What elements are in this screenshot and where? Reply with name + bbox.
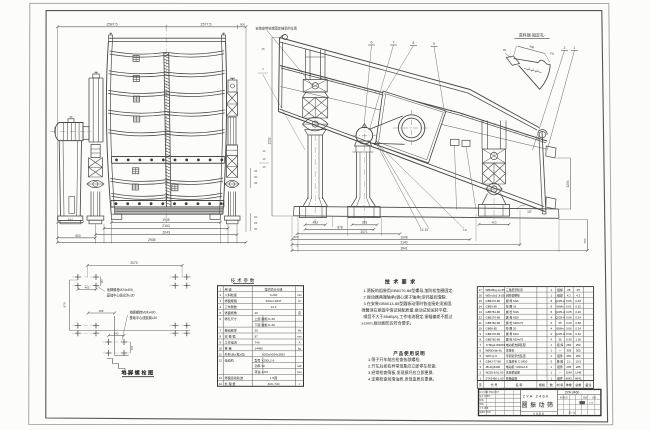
svg-text:代 号: 代 号 — [491, 382, 498, 387]
svg-text:进料端-固定孔-: 进料端-固定孔- — [519, 32, 546, 38]
svg-text:湿式筛分分级: 湿式筛分分级 — [264, 286, 282, 291]
svg-text:820: 820 — [293, 235, 298, 239]
svg-text:0.20: 0.20 — [566, 321, 572, 325]
svg-text:产品使用说明: 产品使用说明 — [393, 350, 425, 357]
svg-text:W80Dzbb-5y: W80Dzbb-5y — [486, 349, 503, 353]
svg-text:Hz: Hz — [298, 329, 302, 333]
svg-text:±1mm,振动图形应符合要求。: ±1mm,振动图形应符合要求。 — [362, 319, 414, 325]
svg-text:圆振动筛: 圆振动筛 — [521, 401, 555, 409]
svg-text:JY80g2-W4615: JY80g2-W4615 — [486, 343, 506, 347]
svg-text:11: 11 — [219, 352, 222, 356]
svg-text:工作电流: 工作电流 — [225, 340, 237, 345]
svg-text:2YA2460-1.00: 2YA2460-1.00 — [486, 376, 504, 380]
svg-text:基础中心线允许≤30: 基础中心线允许≤30 — [107, 293, 135, 298]
svg-text:8: 8 — [413, 41, 415, 45]
svg-text:下层 振幅 8~50: 下层 振幅 8~50 — [255, 322, 276, 327]
svg-text:35: 35 — [558, 321, 562, 325]
svg-text:500: 500 — [240, 22, 245, 26]
svg-text:三角皮带 C-2450: 三角皮带 C-2450 — [506, 360, 528, 364]
svg-text:305: 305 — [566, 349, 571, 353]
svg-text:—: — — [559, 349, 562, 353]
svg-text:1008: 1008 — [400, 235, 407, 239]
svg-text:150: 150 — [130, 345, 134, 350]
svg-text:12: 12 — [479, 315, 483, 319]
svg-text:250: 250 — [566, 354, 571, 358]
svg-text:2.开车后如有异常现象应立即停车检查;: 2.开车后如有异常现象应立即停车检查; — [368, 363, 436, 369]
svg-text:m²: m² — [298, 299, 301, 303]
svg-text:螺 栓 M16: 螺 栓 M16 — [506, 310, 519, 314]
svg-text:筛面倾角: 筛面倾角 — [225, 310, 237, 315]
svg-text:4.2: 4.2 — [567, 293, 571, 297]
svg-text:400~740: 400~740 — [268, 382, 280, 386]
svg-text:97: 97 — [255, 335, 259, 339]
svg-text:305: 305 — [576, 349, 581, 353]
svg-text:11: 11 — [479, 321, 482, 325]
svg-text:15: 15 — [262, 165, 266, 169]
svg-text:1.20: 1.20 — [575, 338, 581, 342]
svg-text:基础中心线距离≤30: 基础中心线距离≤30 — [130, 315, 158, 320]
svg-text:mm: mm — [297, 335, 302, 339]
svg-text:14480: 14480 — [255, 347, 264, 351]
svg-text:10.5: 10.5 — [575, 360, 581, 364]
svg-text:GB6170-86: GB6170-86 — [486, 299, 501, 303]
svg-text:13: 13 — [219, 376, 223, 380]
svg-text:组件: 组件 — [557, 354, 563, 358]
svg-text:GB93-85: GB93-85 — [486, 304, 498, 308]
svg-text:250: 250 — [566, 343, 571, 347]
svg-text:组件: 组件 — [557, 365, 563, 369]
svg-text:技术参数: 技术参数 — [231, 277, 257, 284]
svg-text:rpm: rpm — [297, 370, 302, 374]
svg-text:WBA6Fg-Jy-55: WBA6Fg-Jy-55 — [486, 288, 506, 292]
svg-text:双 振 幅: 双 振 幅 — [225, 334, 236, 339]
svg-text:筛孔尺寸: 筛孔尺寸 — [225, 316, 237, 321]
svg-text:1232: 1232 — [268, 137, 272, 144]
svg-text:数: 数 — [550, 382, 553, 387]
svg-text:Q235-A: Q235-A — [555, 332, 565, 336]
svg-text:878: 878 — [337, 225, 343, 229]
svg-text:3.经常检查筛板,发现损坏应立即更换;: 3.经常检查筛板,发现损坏应立即更换; — [368, 369, 434, 375]
svg-text:电动机: 电动机 — [225, 357, 235, 362]
svg-text:2938: 2938 — [148, 238, 156, 242]
svg-text:垫 圈 20: 垫 圈 20 — [506, 327, 517, 331]
svg-text:17: 17 — [479, 288, 483, 292]
svg-text:WDmJa1-Jt-55: WDmJa1-Jt-55 — [486, 293, 505, 297]
svg-text:1148: 1148 — [566, 371, 573, 375]
svg-text:0.01: 0.01 — [566, 304, 572, 308]
svg-text:15: 15 — [479, 299, 483, 303]
svg-text:1148: 1148 — [575, 371, 582, 375]
svg-text:0.05: 0.05 — [566, 299, 572, 303]
svg-text:kW: kW — [297, 364, 301, 368]
svg-text:型号 Y200L2-6: 型号 Y200L2-6 — [255, 357, 275, 362]
svg-text:12: 12 — [262, 149, 266, 153]
svg-text:1.筛板的组装用GB6170-86型螺母,加防松垫圈固定;: 1.筛板的组装用GB6170-86型螺母,加防松垫圈固定; — [364, 287, 454, 293]
svg-text:三角皮带轮罩: 三角皮带轮罩 — [506, 288, 523, 292]
svg-text:0.10: 0.10 — [575, 304, 581, 308]
svg-text:备注: 备注 — [585, 382, 591, 387]
svg-text:电动机支撑装配: 电动机支撑装配 — [506, 343, 526, 347]
svg-text:序: 序 — [479, 382, 482, 387]
svg-text:600x4.2847: 600x4.2847 — [266, 299, 282, 303]
svg-text:2: 2 — [564, 46, 566, 50]
svg-text:技 术 要 求: 技 术 要 求 — [385, 279, 416, 286]
svg-text:383: 383 — [362, 221, 368, 225]
svg-text:GB6170-86: GB6170-86 — [486, 315, 501, 319]
svg-text:螺 栓 M24x75: 螺 栓 M24x75 — [506, 338, 524, 342]
svg-text:度: 度 — [298, 311, 301, 315]
svg-text:150: 150 — [100, 279, 104, 284]
svg-text:GB5781-86: GB5781-86 — [486, 310, 501, 314]
svg-text:2071: 2071 — [360, 230, 367, 234]
svg-text:螺 母 M24: 螺 母 M24 — [506, 332, 519, 336]
svg-text:组件: 组件 — [557, 376, 563, 380]
svg-text:地脚螺栓M24x400: 地脚螺栓M24x400 — [107, 287, 133, 292]
svg-text:支座梁装配: 支座梁装配 — [506, 371, 520, 375]
svg-text:12: 12 — [219, 358, 223, 362]
svg-text:工作层数: 工作层数 — [225, 304, 237, 309]
svg-text:0.80: 0.80 — [575, 321, 581, 325]
svg-text:25: 25 — [577, 288, 581, 292]
svg-text:螺 母 M20: 螺 母 M20 — [506, 315, 519, 319]
svg-text:20: 20 — [254, 215, 258, 219]
svg-text:用 途: 用 途 — [225, 286, 232, 291]
svg-text:橡 胶: 橡 胶 — [557, 360, 564, 364]
svg-text:344: 344 — [68, 218, 74, 222]
svg-text:间隙调整垫: 间隙调整垫 — [506, 293, 520, 297]
svg-text:重 量: 重 量 — [225, 346, 232, 351]
svg-text:2YA 2460: 2YA 2460 — [523, 393, 550, 398]
svg-text:噪音不大于85dB(A),工作电流稳定,振幅偏差不超过: 噪音不大于85dB(A),工作电流稳定,振幅偏差不超过 — [364, 313, 453, 319]
svg-text:0.32: 0.32 — [575, 332, 581, 336]
svg-text:材 料: 材 料 — [557, 382, 564, 387]
svg-text:13: 13 — [479, 310, 483, 314]
svg-text:0.05: 0.05 — [566, 310, 572, 314]
svg-text:地脚螺栓M24x400: 地脚螺栓M24x400 — [130, 310, 156, 315]
svg-text:2070: 2070 — [130, 261, 138, 265]
svg-text:地脚螺栓图: 地脚螺栓图 — [121, 369, 154, 377]
svg-text:名 称: 名 称 — [516, 382, 523, 387]
svg-text:250: 250 — [576, 354, 581, 358]
svg-text:Q235-A: Q235-A — [555, 299, 565, 303]
svg-text:Q235-A: Q235-A — [555, 315, 565, 319]
svg-text:螺 栓 M20x70: 螺 栓 M20x70 — [506, 321, 524, 325]
svg-text:25: 25 — [254, 169, 258, 173]
svg-text:0.40: 0.40 — [575, 310, 581, 314]
svg-text:25: 25 — [567, 288, 571, 292]
svg-text:A: A — [299, 341, 301, 345]
svg-text:500: 500 — [75, 234, 81, 238]
svg-text:10: 10 — [262, 157, 266, 161]
svg-text:14: 14 — [219, 382, 223, 386]
svg-text:单重: 单重 — [566, 382, 572, 387]
svg-text:1945: 1945 — [162, 218, 170, 222]
svg-text:0.24: 0.24 — [575, 315, 581, 319]
svg-text:14: 14 — [479, 304, 483, 308]
svg-text:GB6170-86: GB6170-86 — [486, 332, 501, 336]
svg-text:8642: 8642 — [575, 376, 582, 380]
svg-text:2643: 2643 — [162, 231, 170, 235]
svg-text:筛面规格: 筛面规格 — [225, 298, 238, 303]
svg-text:35: 35 — [254, 181, 258, 185]
svg-text:6000x9034x3852: 6000x9034x3852 — [262, 352, 285, 356]
svg-text:493: 493 — [313, 221, 319, 225]
svg-text:功率 30: 功率 30 — [255, 363, 266, 368]
svg-text:筛箱装配: 筛箱装配 — [506, 376, 518, 380]
svg-text:外形(长x宽x高): 外形(长x宽x高) — [225, 351, 246, 356]
svg-text:W8Y-jz-6: W8Y-jz-6 — [486, 354, 498, 358]
svg-text:8642: 8642 — [566, 376, 573, 380]
svg-text:规格: 规格 — [539, 382, 545, 387]
svg-text:25: 25 — [261, 47, 265, 51]
svg-text:振动频率: 振动频率 — [225, 328, 237, 333]
svg-text:16: 16 — [479, 293, 483, 297]
svg-text:0.30: 0.30 — [566, 338, 572, 342]
svg-text:0.24: 0.24 — [575, 327, 581, 331]
svg-text:10: 10 — [219, 347, 223, 351]
svg-text:2140: 2140 — [400, 241, 407, 245]
svg-text:1.筛子开车前应检查各部螺栓;: 1.筛子开车前应检查各部螺栓; — [368, 356, 420, 362]
svg-text:入料粒度: 入料粒度 — [225, 292, 237, 297]
svg-text:250: 250 — [576, 343, 581, 347]
svg-text:1294: 1294 — [566, 180, 570, 187]
svg-text:—: — — [559, 371, 562, 375]
svg-text:GB4J-77-88: GB4J-77-88 — [486, 360, 502, 364]
svg-text:15°: 15° — [527, 210, 533, 214]
svg-text:弹簧须在紧固中保证装配质量,振动试验运转平稳,: 弹簧须在紧固中保证装配质量,振动试验运转平稳, — [362, 306, 448, 312]
svg-text:安装皮带轮端固定轴承的位置: 安装皮带轮端固定轴承的位置 — [256, 25, 297, 30]
svg-text:6: 6 — [371, 41, 373, 45]
svg-text:0.08: 0.08 — [566, 332, 572, 336]
svg-text:GB5782-86: GB5782-86 — [486, 321, 501, 325]
svg-text:上层 振幅 8~50: 上层 振幅 8~50 — [255, 316, 276, 321]
svg-text:0.06: 0.06 — [566, 327, 572, 331]
svg-text:65: 65 — [503, 48, 507, 52]
svg-text:65Mn: 65Mn — [556, 327, 564, 331]
svg-text:总重: 总重 — [575, 382, 581, 387]
svg-text:25: 25 — [254, 221, 258, 225]
svg-text:筛面运动轨迹: 筛面运动轨迹 — [225, 375, 244, 380]
svg-text:20: 20 — [255, 311, 259, 315]
svg-text:493: 493 — [491, 220, 496, 224]
svg-text:205: 205 — [566, 365, 571, 369]
svg-text:1.5圆: 1.5圆 — [270, 376, 277, 380]
svg-text:458: 458 — [99, 309, 104, 313]
svg-text:Q235-A: Q235-A — [555, 310, 565, 314]
svg-text:14 15: 14 15 — [420, 228, 428, 232]
svg-text:2YA 2460: 2YA 2460 — [565, 390, 580, 394]
svg-text:30: 30 — [254, 227, 258, 231]
svg-text:4.2: 4.2 — [576, 293, 580, 297]
svg-text:740: 740 — [255, 341, 260, 345]
svg-text:带调宽带式装置: 带调宽带式装置 — [506, 354, 526, 358]
svg-text:0.40: 0.40 — [575, 299, 581, 303]
svg-text:35: 35 — [558, 338, 562, 342]
svg-text:2163: 2163 — [162, 224, 170, 228]
svg-text:465: 465 — [85, 285, 90, 289]
svg-text:704: 704 — [583, 238, 587, 243]
svg-text:螺 母 M16: 螺 母 M16 — [506, 299, 519, 303]
svg-text:65Mn: 65Mn — [556, 304, 564, 308]
svg-text:转速 1470: 转速 1470 — [255, 369, 269, 374]
svg-text:205: 205 — [576, 365, 581, 369]
svg-text:kg: kg — [298, 347, 301, 351]
svg-text:GB5782-86: GB5782-86 — [486, 338, 501, 342]
svg-text:0.06: 0.06 — [566, 315, 572, 319]
svg-text:组 焊: 组 焊 — [557, 343, 564, 347]
svg-text:9: 9 — [433, 42, 435, 46]
svg-text:20: 20 — [255, 329, 259, 333]
svg-text:4.定期检查润滑油质,发现变质应更换。: 4.定期检查润滑油质,发现变质应更换。 — [368, 376, 436, 382]
svg-text:L: L — [297, 243, 299, 247]
svg-text:W255-8.01.00: W255-8.01.00 — [486, 371, 504, 375]
svg-text:0.200: 0.200 — [270, 293, 278, 297]
svg-text:组焊: 组焊 — [557, 293, 563, 297]
svg-text:垫 圈 16: 垫 圈 16 — [506, 304, 517, 308]
svg-text:JB-ZQ4390: JB-ZQ4390 — [486, 365, 501, 369]
svg-text:10: 10 — [479, 327, 483, 331]
svg-text:L8: L8 — [463, 228, 467, 232]
svg-text:3.在安装GB5013-85型圆振动筛时各连接处须紧固,: 3.在安装GB5013-85型圆振动筛时各连接处须紧固, — [364, 300, 453, 306]
svg-text:2577.5: 2577.5 — [201, 22, 212, 26]
svg-text:3941: 3941 — [400, 246, 407, 250]
svg-text:处 理 量: 处 理 量 — [225, 381, 236, 386]
svg-text:组焊: 组焊 — [557, 288, 563, 292]
svg-text:30: 30 — [254, 175, 258, 179]
svg-text:支撑架: 支撑架 — [506, 349, 515, 353]
svg-text:2.1: 2.1 — [567, 360, 571, 364]
svg-text:14.4: 14.4 — [271, 305, 277, 309]
svg-text:2.振动器两端轴承(调心滚子轴承)涂钙基润滑脂;: 2.振动器两端轴承(调心滚子轴承)涂钙基润滑脂; — [364, 293, 447, 299]
svg-text:mm: mm — [297, 293, 302, 297]
svg-text:7: 7 — [393, 41, 395, 45]
svg-text:2587.5: 2587.5 — [107, 22, 118, 26]
svg-text:979: 979 — [63, 302, 67, 307]
svg-text:GB96-85: GB96-85 — [486, 327, 498, 331]
svg-text:电动机 Y200L2-6: 电动机 Y200L2-6 — [506, 365, 528, 369]
svg-text:1: 1 — [574, 46, 576, 50]
